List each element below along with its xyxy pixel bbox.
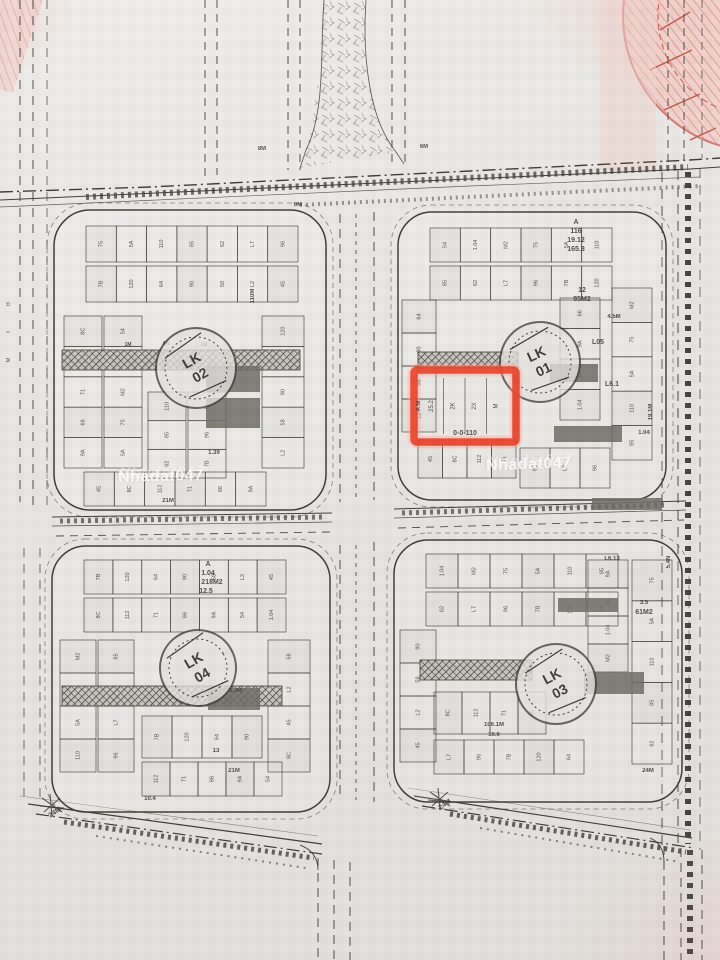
plot-label: 9A [81,449,87,456]
block-label: 61M2 [635,609,653,616]
plot-label: 8C [452,455,458,462]
block-label: 106.1M [484,722,504,728]
plot-label: 5A [121,449,127,456]
pink-band [600,0,656,170]
plot-label: 85 [114,653,120,659]
road-line [52,522,332,526]
plot-label: 7B [507,753,513,760]
plot-label: L2 [250,281,256,287]
block-label: 6M [294,202,302,208]
plot-label: L7 [114,719,120,725]
edge-glyph: M [6,358,12,363]
plot-label: 90 [245,734,251,740]
plot-label: 64 [567,754,573,760]
plot-label: 58 [281,419,287,425]
plot-label: 62 [440,606,446,612]
plot-label: 8C [446,709,452,716]
plot-label: L7 [472,606,478,612]
plot-label: 75 [534,242,540,248]
plot-label: 66 [183,612,189,618]
block-label: A [573,219,578,226]
plot-label: 45 [287,719,293,725]
plot-label: 9A [578,340,584,347]
plot-label: M2 [472,567,478,575]
plot-label: 8C [81,328,87,335]
plot-label: 58 [287,653,293,659]
highlight-cell-label: 2X [472,402,478,409]
road-line [422,806,694,848]
plot-label: 7B [96,573,102,580]
plot-label: 85 [190,241,196,247]
plot-label: 71 [154,612,160,618]
plot-label: 90 [183,574,189,580]
road-line [480,828,680,862]
plot-label: 54 [240,612,246,618]
plot-label: 1.04 [606,625,612,636]
block-label: 12.5 [199,588,213,595]
plot-label: 45 [416,742,422,748]
block-label: 10.6 [488,732,500,738]
plot-label: 64 [215,734,221,740]
block-label: 218M2 [201,579,223,586]
block-label: 85M2 [573,296,591,303]
plot-label: 110 [76,751,82,760]
plot-label: 45 [280,281,286,287]
plot-label: 110 [165,402,171,411]
plot-label: L7 [447,754,453,760]
plot-label: 85 [165,432,171,438]
plot-label: L7 [503,280,509,286]
plot-label: 5A [536,567,542,574]
red-stamp-corner [0,0,44,93]
plot-label: 96 [504,606,510,612]
block-label: L05 [592,339,604,346]
block-label: 10.4 [144,796,156,802]
watermark: Nhadat047 [486,455,572,476]
plot-label: 120 [594,278,600,287]
block-label: L.04 [230,688,243,694]
plot-label: 71 [502,710,508,716]
plot-label: 5A [129,240,135,247]
block-label: 13 [213,748,220,754]
road-width-label: 8M [258,146,266,152]
canal-fill [300,0,396,168]
plot-label: 9A [211,611,217,618]
plot-label: 85 [650,700,656,706]
plot-label: 7B [536,605,542,612]
road-line [56,532,330,536]
plot-label: 9A [238,775,244,782]
plot-label: 45 [269,574,275,580]
plot-label: L2 [281,450,287,456]
plot-label: 64 [417,313,423,319]
block-label: 3.5 [640,600,649,606]
plot-label: 7B [205,460,211,467]
plot-label: 7B [155,733,161,740]
block-label: 19.1M [648,404,654,421]
road-line [64,822,314,858]
dark-plot [592,498,662,510]
plot-label: 71 [182,776,188,782]
road-line [300,186,700,205]
road-line [36,814,322,854]
plot-label: 1.04 [473,240,479,251]
plan-drawing: 755A1108562L7967B120649058L2458C11271669… [0,0,720,960]
block-label: L6.1 [605,381,619,388]
block-label: 1M [125,342,132,348]
plot-label: 7B [564,279,570,286]
dark-plot [558,598,618,612]
plot-label: 64 [154,574,160,580]
block-label: 1.39 [208,450,220,456]
block-label: 165.8 [567,246,585,253]
block-label: 21M [162,498,174,504]
plot-label: L7 [250,241,256,247]
plot-label: 120 [537,752,543,761]
block-label: 110M [250,289,256,304]
edge-glyph: T [6,330,12,334]
plot-label: 85 [630,440,636,446]
plot-label: 58 [220,281,226,287]
plot-label: 96 [477,754,483,760]
highlight-red-row: 0-0-110 [453,430,477,437]
plot-label: 90 [416,643,422,649]
block-label: 1.04 [638,430,650,436]
plot-label: 66 [81,419,87,425]
scanned-plan-page: 755A1108562L7967B120649058L2458C11271669… [0,0,720,960]
plot-blocks: 755A1108562L7967B120649058L2458C11271669… [45,202,689,819]
plot-label: 45 [97,486,103,492]
plot-label: 7B [99,280,105,287]
plot-label: 75 [630,337,636,343]
highlight-cell-label: M [493,404,499,409]
plot-label: M2 [121,388,127,396]
plot-label: 45 [428,456,434,462]
plot-label: 62 [650,741,656,747]
block-label: A [205,561,210,568]
highlight-side-label: A M [416,401,422,412]
plot-label: L2 [416,709,422,715]
plot-label: 5A [76,719,82,726]
block-label: 21M [228,768,240,774]
plot-label: 54 [443,242,449,248]
plot-label: 90 [190,281,196,287]
plot-label: L2 [287,686,293,692]
plot-label: M2 [606,654,612,662]
road-line [52,513,332,517]
plot-label: 5A [650,618,656,625]
plot-label: 112 [125,611,131,620]
plot-label: 110 [650,658,656,667]
plot-label: 75 [121,419,127,425]
plot-label: 66 [218,486,224,492]
plot-label: 110 [630,404,636,413]
plot-label: M2 [630,301,636,309]
canal-strip [300,0,404,168]
plot-label: 75 [99,241,105,247]
plot-label: 75 [650,577,656,583]
watermark: Nhadat047 [118,467,204,486]
plot-label: 8C [287,752,293,759]
road-width-label: 6M [420,144,428,150]
plot-label: 120 [281,327,287,336]
plot-label: M2 [503,241,509,249]
plot-label: 90 [281,389,287,395]
plot-label: 112 [477,455,483,464]
plot-label: 9A [606,570,612,577]
plot-label: 120 [125,572,131,581]
plot-label: 85 [443,280,449,286]
plot-label: 96 [280,241,286,247]
plot-label: 75 [504,568,510,574]
plot-label: 54 [121,328,127,334]
road-line [398,520,684,528]
plot-label: 96 [593,465,599,471]
dark-plot [554,426,622,442]
plot-label: 96 [534,280,540,286]
plot-label: 66 [578,310,584,316]
edge-glyph: B [6,302,12,306]
highlight-cell-label: 2K [450,402,456,409]
block-label: 12 [578,287,586,294]
plot-label: 1.04 [440,566,446,577]
plot-label: 71 [188,486,194,492]
block-label: 19.12 [567,237,585,244]
plot-label: 66 [210,776,216,782]
block-label: 5.4N [666,556,672,569]
plot-label: 71 [81,389,87,395]
plot-label: 112 [154,775,160,784]
plot-label: 112 [474,709,480,718]
plot-label: 62 [473,280,479,286]
block-label: 116 [570,228,581,235]
plot-label: 62 [165,461,171,467]
plot-label: 9A [248,485,254,492]
plot-label: 96 [114,752,120,758]
plot-label: 110 [594,241,600,250]
plot-label: 8C [96,611,102,618]
plot-label: 110 [159,240,165,249]
block-label: 1.04 [201,570,215,577]
plot-label: 1.04 [578,399,584,410]
block-label: 4.5M [607,314,620,320]
block-label: L6.13 [604,556,620,562]
plot-label: 120 [129,279,135,288]
plot-label: M2 [76,653,82,661]
plot-label: 96 [205,432,211,438]
hatched-strip [420,660,532,680]
plot-label: 120 [185,732,191,741]
plot-label: L2 [240,574,246,580]
plot-label: 1.04 [269,610,275,621]
plot-label: 64 [159,281,165,287]
plot-label: 5A [630,370,636,377]
plot-label: 54 [266,776,272,782]
plot-label: 62 [220,241,226,247]
block-label: 24M [642,768,654,774]
highlight-cell-label: 25.2 [429,400,435,412]
plot-label: 110 [568,567,574,576]
road-line [60,517,326,521]
